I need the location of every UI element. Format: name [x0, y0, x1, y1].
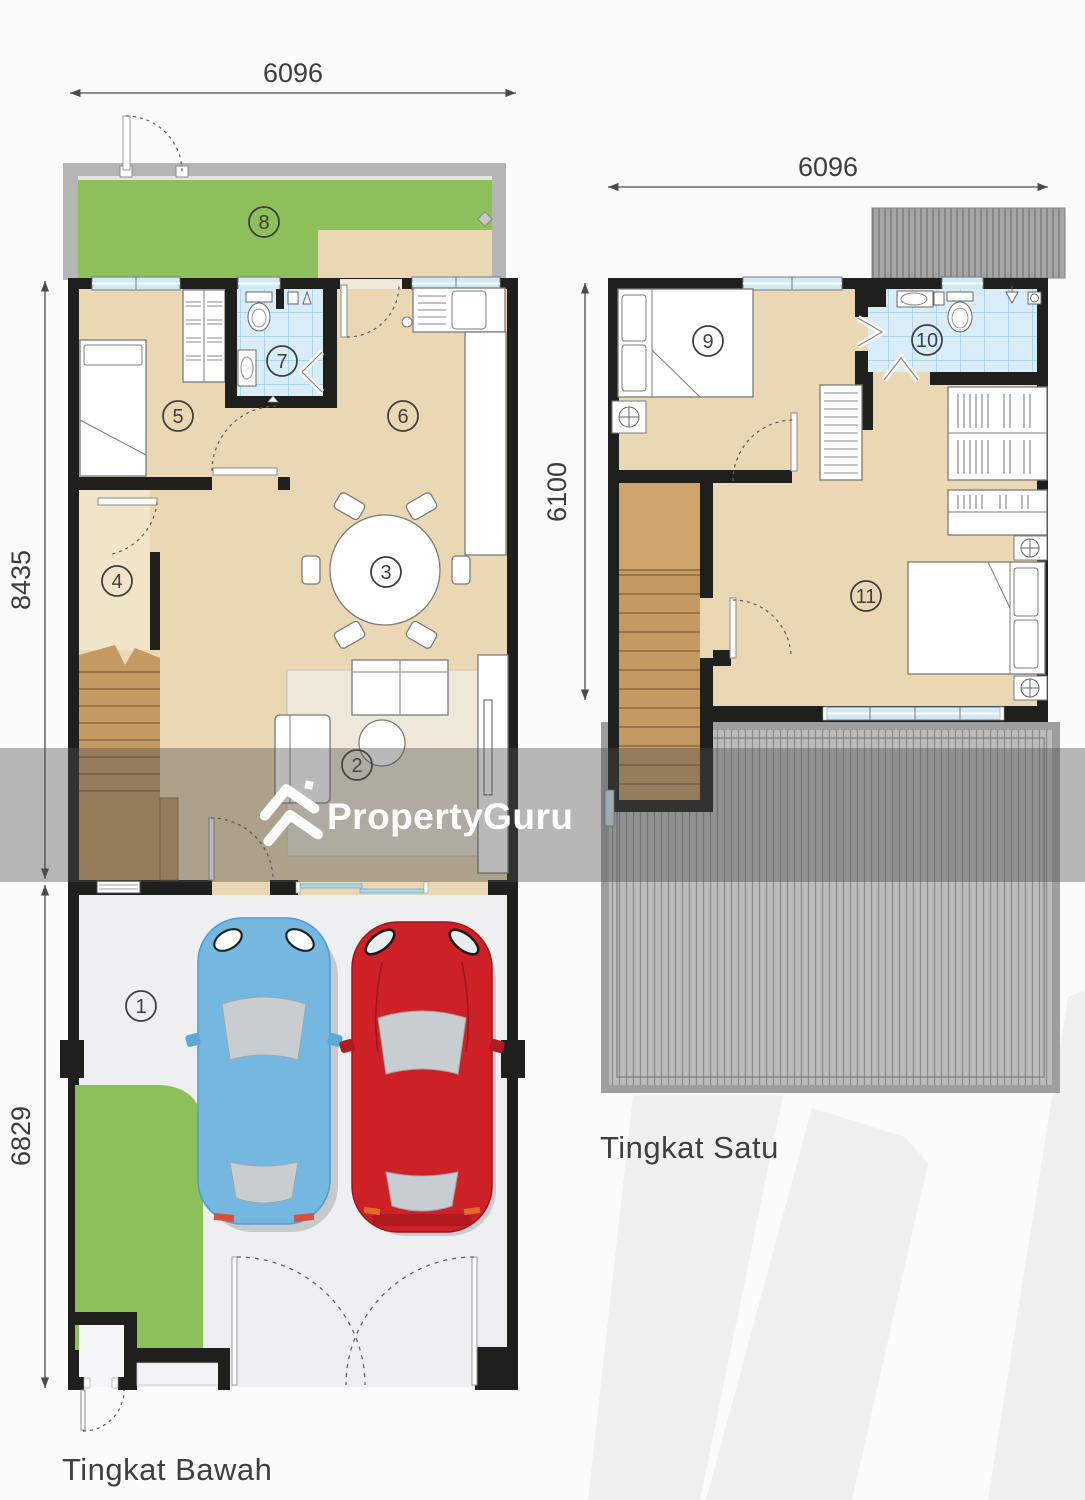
- side-garden: [75, 1085, 203, 1350]
- room-number-6: 6: [397, 406, 408, 428]
- dim-ground-width: 6096: [263, 58, 323, 88]
- first-floor-plan: 9 10 11 6096 6100 Tingkat Satu: [542, 152, 1065, 1165]
- rear-window-first: [823, 707, 1004, 720]
- room-number-10: 10: [916, 330, 938, 352]
- room-number-3: 3: [380, 562, 391, 584]
- linen-cabinet: [820, 385, 862, 480]
- bathroom-ground: [225, 289, 337, 408]
- room-number-9: 9: [702, 331, 713, 353]
- room-number-4: 4: [111, 571, 122, 593]
- car-blue: [185, 918, 344, 1232]
- front-yard: [63, 116, 506, 280]
- dim-ground-upper-height: 8435: [6, 550, 36, 610]
- roof-upper: [872, 208, 1065, 278]
- room-number-5: 5: [172, 406, 183, 428]
- floorplan-page: 1 2 3 4 5 6 7 8 6096 8435 6829 Tingkat B…: [0, 0, 1085, 1500]
- dim-first-height: 6100: [542, 462, 572, 522]
- room-number-7: 7: [276, 351, 287, 373]
- ground-floor-title: Tingkat Bawah: [62, 1452, 272, 1487]
- room-number-11: 11: [856, 586, 877, 608]
- kitchen-entry-door: [341, 285, 347, 337]
- watermark-brand-text: PropertyGuru: [327, 796, 574, 837]
- dim-first-width: 6096: [798, 152, 858, 182]
- toilet: [246, 292, 272, 302]
- room-number-1: 1: [135, 996, 146, 1018]
- first-floor-title: Tingkat Satu: [600, 1130, 779, 1165]
- car-porch: [60, 895, 525, 1431]
- hallway-floor: [79, 490, 150, 650]
- room-label-10: 10: [912, 325, 942, 355]
- room-number-8: 8: [258, 212, 269, 234]
- toilet: [947, 292, 973, 301]
- floorplan-drawing: 1 2 3 4 5 6 7 8 6096 8435 6829 Tingkat B…: [0, 0, 1085, 1500]
- kitchen-counter: [465, 332, 506, 555]
- watermark-band: PropertyGuru: [0, 748, 1085, 882]
- dim-ground-lower-height: 6829: [6, 1106, 36, 1166]
- car-red: [339, 922, 506, 1236]
